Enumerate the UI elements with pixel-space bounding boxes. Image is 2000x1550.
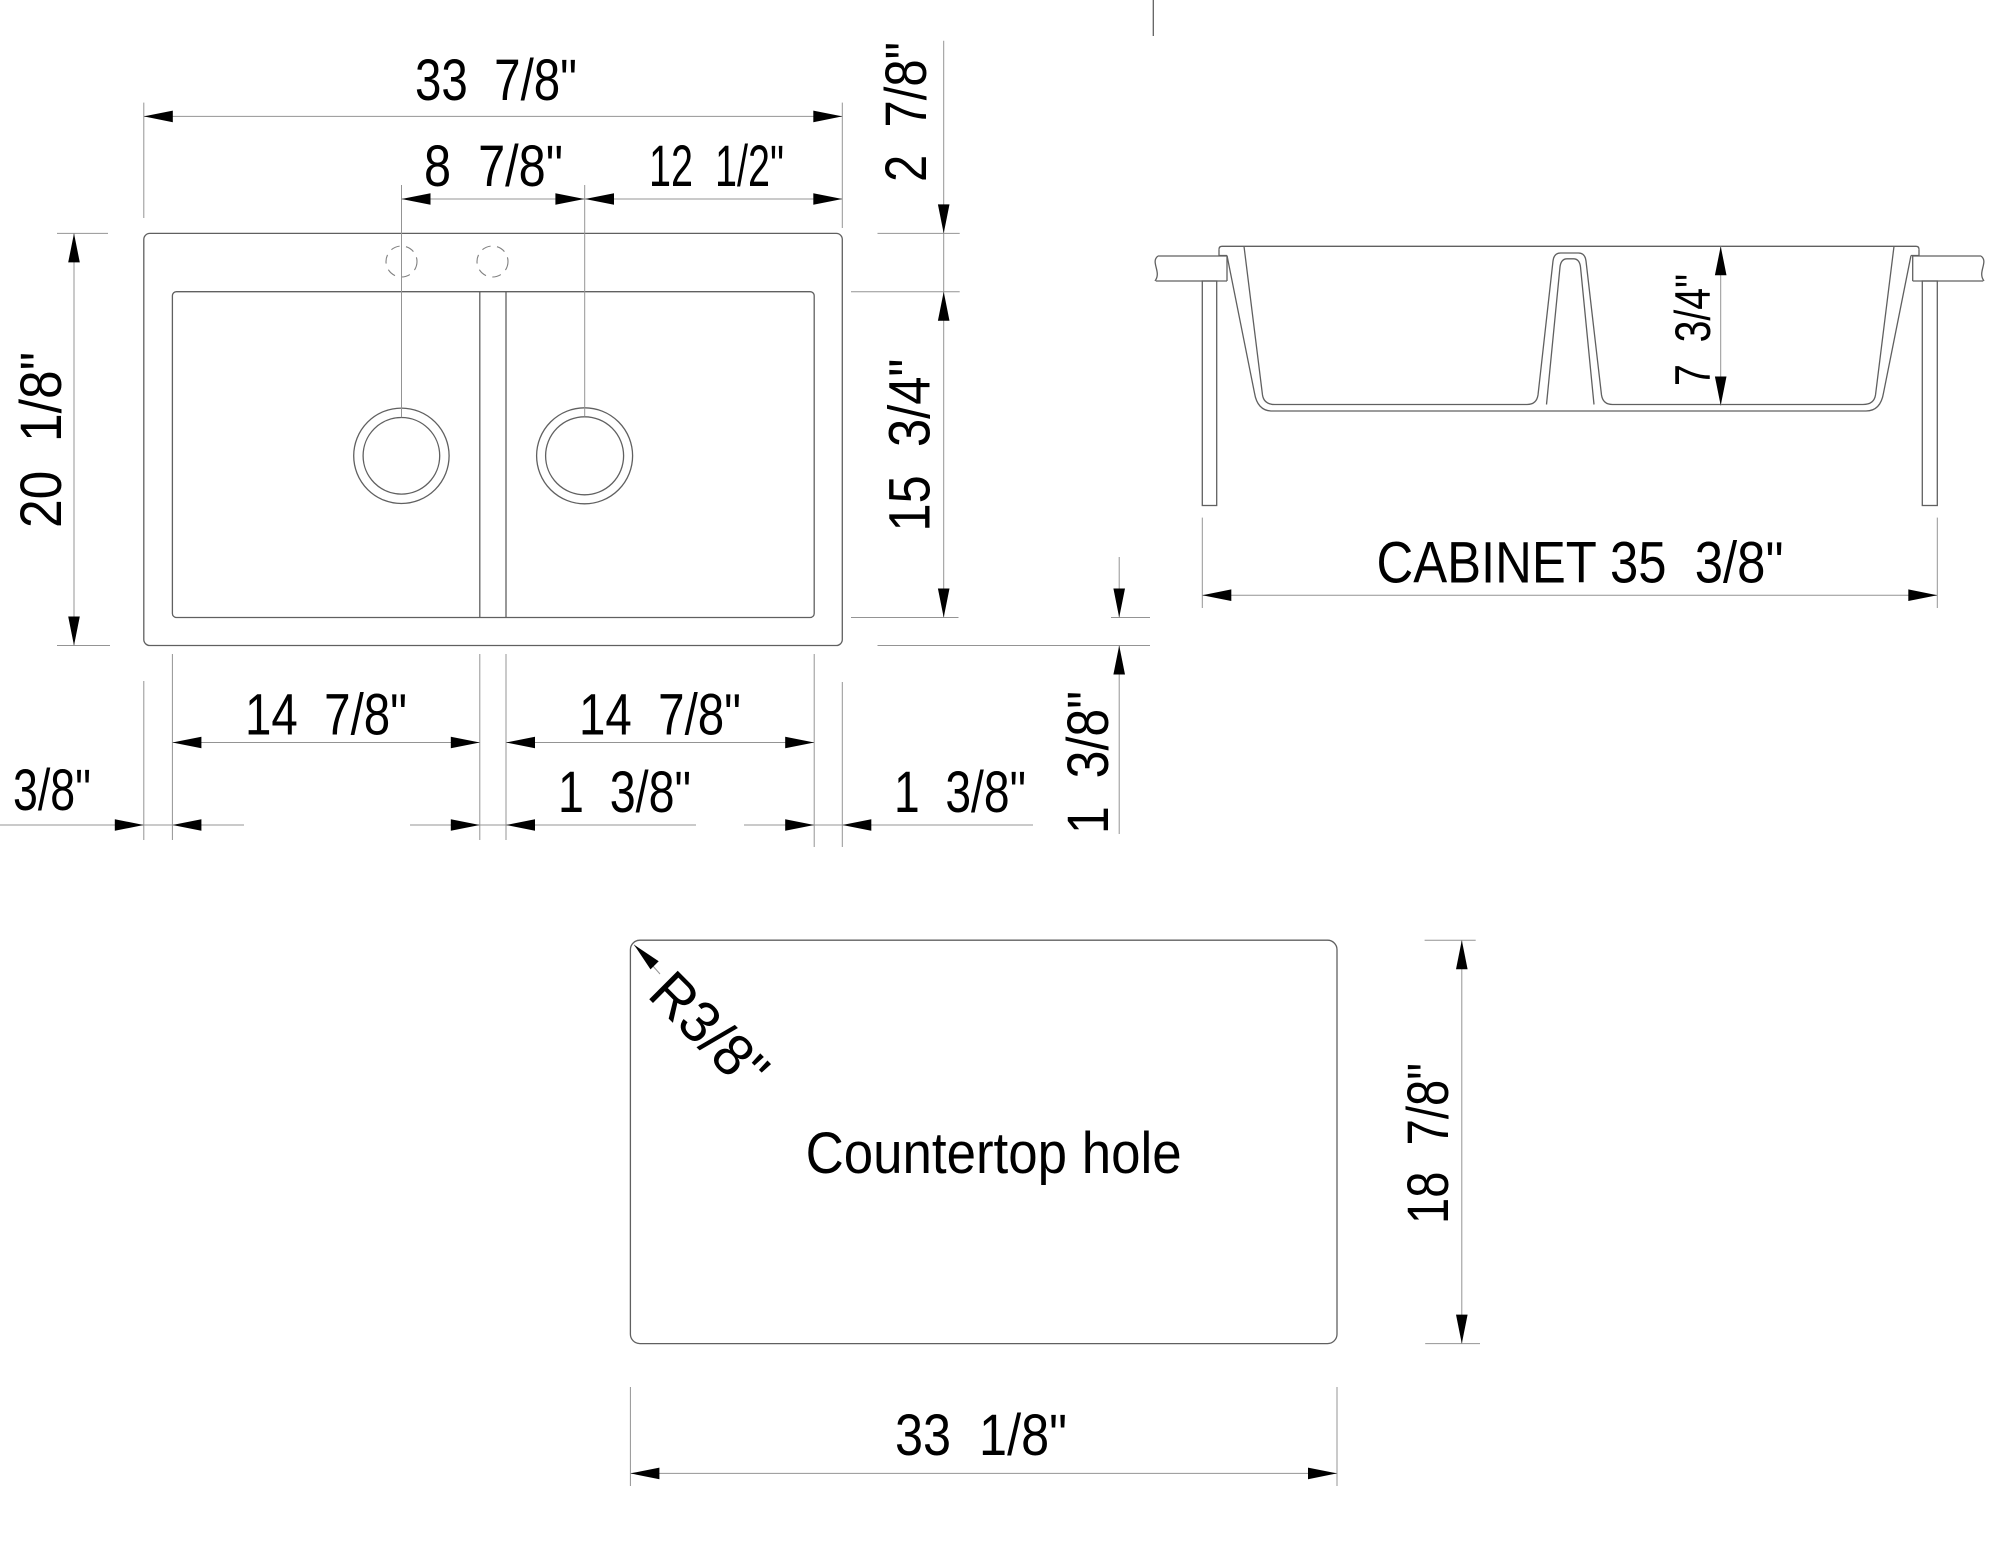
svg-text:14 7/8": 14 7/8" xyxy=(579,683,741,748)
svg-text:8 7/8": 8 7/8" xyxy=(424,134,563,199)
svg-text:33 7/8": 33 7/8" xyxy=(415,48,577,113)
svg-text:2 7/8": 2 7/8" xyxy=(874,42,939,182)
svg-text:18 7/8": 18 7/8" xyxy=(1396,1063,1461,1224)
svg-text:33 1/8": 33 1/8" xyxy=(895,1403,1067,1468)
svg-text:12 1/2": 12 1/2" xyxy=(649,134,784,199)
svg-text:1 3/8": 1 3/8" xyxy=(1056,691,1121,834)
svg-text:15 3/4": 15 3/4" xyxy=(878,359,943,532)
svg-text:1 3/8": 1 3/8" xyxy=(894,760,1026,825)
svg-text:1 3/8": 1 3/8" xyxy=(558,760,691,825)
svg-text:Countertop hole: Countertop hole xyxy=(806,1121,1182,1186)
svg-text:CABINET 35 3/8": CABINET 35 3/8" xyxy=(1377,530,1784,595)
svg-text:7 3/4": 7 3/4" xyxy=(1664,274,1721,386)
svg-text:3/8": 3/8" xyxy=(13,758,91,823)
svg-text:14 7/8": 14 7/8" xyxy=(245,683,407,748)
svg-text:R3/8": R3/8" xyxy=(637,959,781,1103)
svg-text:20 1/8": 20 1/8" xyxy=(9,352,74,528)
